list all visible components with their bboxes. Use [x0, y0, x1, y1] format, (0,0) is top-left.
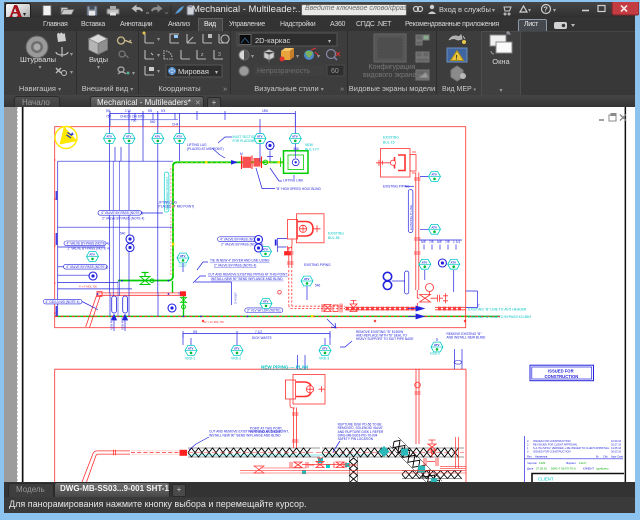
svg-text:1 1/4: 1 1/4	[453, 240, 460, 244]
svg-text:7 1/2: 7 1/2	[255, 330, 262, 334]
svg-text:BUL-1YY: BUL-1YY	[305, 148, 320, 152]
svg-text:4" VALVE BY-PASS (NOTE 4): 4" VALVE BY-PASS (NOTE 4)	[66, 265, 108, 269]
svg-text:"B" HIGH SPEED HOLE BLIND: "B" HIGH SPEED HOLE BLIND	[276, 187, 321, 191]
svg-text:PIPE AND ANGELINE: PIPE AND ANGELINE	[250, 430, 282, 434]
svg-text:BUL-15: BUL-15	[383, 141, 395, 145]
svg-text:NEW PIPING — PLAN: NEW PIPING — PLAN	[261, 364, 309, 369]
svg-text:Непрозрачность: Непрозрачность	[257, 68, 310, 75]
svg-text:2" VLV W/ LDR (NOTE): 2" VLV W/ LDR (NOTE)	[247, 308, 280, 312]
svg-text:BUL-55: BUL-55	[328, 236, 340, 240]
svg-text:AND INSTALL NEW BLIND: AND INSTALL NEW BLIND	[447, 336, 486, 340]
svg-text:02.07.16: 02.07.16	[611, 442, 622, 446]
svg-text:SAFETY PIN LOCATION: SAFETY PIN LOCATION	[338, 437, 374, 441]
svg-text:Чертёж: Чертёж	[527, 461, 537, 465]
svg-text:2D-каркас: 2D-каркас	[255, 36, 290, 45]
svg-text:760: 760	[131, 119, 137, 123]
svg-text:S.A./TA./SP.SV. VERIFIED + RE-: S.A./TA./SP.SV. VERIFIED + RE-ISSUED TO …	[533, 446, 610, 450]
svg-text:▾: ▾	[251, 54, 254, 60]
svg-text:1: 1	[527, 446, 529, 450]
svg-text:ISSUED FOR CONSTRUCTION: ISSUED FOR CONSTRUCTION	[533, 450, 571, 454]
svg-text:30.03.16: 30.03.16	[611, 450, 622, 454]
svg-text:76: 76	[178, 291, 182, 295]
svg-text:▾: ▾	[328, 39, 331, 45]
svg-text:EXISTING PIPING: EXISTING PIPING	[304, 263, 331, 267]
svg-text:27.05.16: 27.05.16	[536, 467, 547, 471]
svg-text:3: 3	[527, 439, 529, 443]
svg-text:2" VALVE BY-PASS (NOTE 4): 2" VALVE BY-PASS (NOTE 4)	[68, 247, 110, 251]
svg-text:TIE IN NEW 4" DRYER AND LINE U: TIE IN NEW 4" DRYER AND LINE USING	[210, 259, 270, 263]
svg-text:LIFTING LINK: LIFTING LINK	[283, 179, 304, 183]
svg-text:(PLACED AT MID POINT): (PLACED AT MID POINT)	[187, 147, 224, 151]
svg-text:5'6: 5'6	[106, 109, 110, 113]
svg-text:INSTALL NEW 90° BEND W/FLANGE: INSTALL NEW 90° BEND W/FLANGE AND BLIND.	[211, 277, 284, 281]
svg-text:ISSUED FOR: ISSUED FOR	[548, 368, 574, 373]
svg-text:CH4: CH4	[172, 122, 179, 126]
svg-text:HEAVY SUPPORT TO SUIT PIPE BAS: HEAVY SUPPORT TO SUIT PIPE BASE	[356, 337, 414, 341]
svg-text:EXISTING 8" LINE: EXISTING 8" LINE	[409, 205, 413, 230]
svg-text:NEW: NEW	[305, 143, 314, 147]
svg-text:Br: Br	[596, 454, 599, 458]
svg-text:EXISTING: EXISTING	[383, 135, 399, 139]
svg-text:546: 546	[294, 147, 300, 151]
svg-text:▾: ▾	[132, 71, 135, 77]
svg-text:Вход в службы: Вход в службы	[439, 5, 491, 14]
svg-text:CLIENT: CLIENT	[538, 477, 554, 482]
svg-text:3'-4 5/16": 3'-4 5/16"	[234, 292, 238, 304]
svg-text:18'6: 18'6	[262, 109, 268, 113]
svg-text:546: 546	[315, 284, 321, 288]
svg-text:60: 60	[331, 68, 339, 75]
svg-text:DICK WASTE: DICK WASTE	[252, 336, 272, 340]
svg-text:767: 767	[106, 115, 112, 119]
svg-text:4" OD/13 N/D (NOTE 4): 4" OD/13 N/D (NOTE 4)	[46, 300, 80, 304]
svg-text:Дата: Дата	[527, 467, 534, 471]
svg-text:76: 76	[476, 303, 480, 307]
svg-text:(PLACED AT MID POINT): (PLACED AT MID POINT)	[158, 205, 195, 209]
svg-text:1425: 1425	[539, 461, 546, 465]
svg-text:RE-ISSUED FOR CLIENT APPROVAL: RE-ISSUED FOR CLIENT APPROVAL	[533, 442, 578, 446]
svg-text:540: 540	[150, 120, 156, 124]
svg-text:5'6: 5'6	[193, 330, 197, 334]
svg-text:Мировая: Мировая	[178, 67, 209, 76]
svg-text:DWG-T 55-FS-79-U: DWG-T 55-FS-79-U	[551, 467, 576, 471]
svg-text:EXISTING: EXISTING	[328, 232, 344, 236]
svg-text:▾: ▾	[157, 53, 160, 59]
svg-text:VRD-3: VRD-3	[319, 357, 329, 361]
svg-text:2" VALVE BY-PASS (NOTE 4): 2" VALVE BY-PASS (NOTE 4)	[102, 216, 144, 220]
svg-text:M: M	[240, 152, 243, 156]
svg-text:2: 2	[527, 442, 529, 446]
svg-text:0: 0	[527, 450, 529, 454]
svg-text:5/8': 5/8'	[421, 240, 426, 244]
svg-text:14.05.16: 14.05.16	[611, 446, 622, 450]
svg-text:2" VALVE BY-PASS (NOTE 4): 2" VALVE BY-PASS (NOTE 4)	[214, 264, 256, 268]
svg-text:▾: ▾	[157, 69, 160, 75]
svg-text:ISSUED FOR CONSTRUCTION: ISSUED FOR CONSTRUCTION	[533, 439, 571, 443]
svg-text:Наименов.: Наименов.	[535, 454, 548, 458]
svg-text:Date: Date	[618, 454, 624, 458]
svg-text:▾: ▾	[317, 54, 320, 60]
svg-text:CONSTRUCTION: CONSTRUCTION	[545, 374, 579, 379]
svg-text:7/8': 7/8'	[429, 240, 434, 244]
svg-text:?: ?	[544, 7, 548, 14]
svg-text:10.09.16: 10.09.16	[611, 439, 622, 443]
svg-text:HSS-2: HSS-2	[430, 352, 440, 356]
svg-text:▾: ▾	[553, 8, 556, 14]
svg-text:▾: ▾	[492, 8, 495, 14]
svg-text:4' x 4' MOL 750: 4' x 4' MOL 750	[79, 285, 97, 289]
svg-text:11x17: 11x17	[579, 461, 587, 465]
svg-text:5'6: 5'6	[148, 109, 152, 113]
svg-text:КЛИЕНТ: КЛИЕНТ	[583, 467, 594, 471]
svg-text:▾: ▾	[296, 54, 299, 60]
svg-text:Appr: Appr	[611, 454, 617, 458]
svg-text:VRD-2: VRD-2	[231, 357, 241, 361]
svg-text:EXISTING "B" LINE TO AV-5 HEAD: EXISTING "B" LINE TO AV-5 HEADER	[468, 308, 527, 312]
svg-text:Chk: Chk	[603, 454, 608, 458]
svg-text:!: !	[456, 56, 458, 62]
svg-text:▾: ▾	[528, 8, 531, 14]
svg-text:540: 540	[120, 232, 126, 236]
svg-text:z: z	[201, 52, 204, 58]
svg-text:Формат: Формат	[566, 461, 577, 465]
svg-text:4" VALVE BY-PASS (NOTE 4): 4" VALVE BY-PASS (NOTE 4)	[101, 211, 143, 215]
svg-text:▾: ▾	[215, 70, 218, 76]
svg-text:Rev: Rev	[527, 454, 532, 458]
svg-text:EXISTING "B" LINE TO BYPASS KO: EXISTING "B" LINE TO BYPASS KO-85H	[468, 315, 531, 319]
svg-text:C207: C207	[179, 264, 187, 268]
svg-text:одобрено: одобрено	[596, 467, 609, 471]
svg-text:5'3: 5'3	[161, 109, 165, 113]
svg-text:12' x 14' RDL 750: 12' x 14' RDL 750	[204, 320, 225, 324]
svg-text:4" VALVE BY-PASS (NOTE 4): 4" VALVE BY-PASS (NOTE 4)	[67, 242, 109, 246]
svg-text:1'10: 1'10	[125, 109, 131, 113]
svg-text:3: 3	[218, 52, 221, 58]
svg-text:5/8': 5/8'	[437, 240, 442, 244]
svg-text:▾: ▾	[157, 37, 160, 43]
svg-text:VRD-1: VRD-1	[185, 357, 195, 361]
svg-text:7/8': 7/8'	[445, 240, 450, 244]
